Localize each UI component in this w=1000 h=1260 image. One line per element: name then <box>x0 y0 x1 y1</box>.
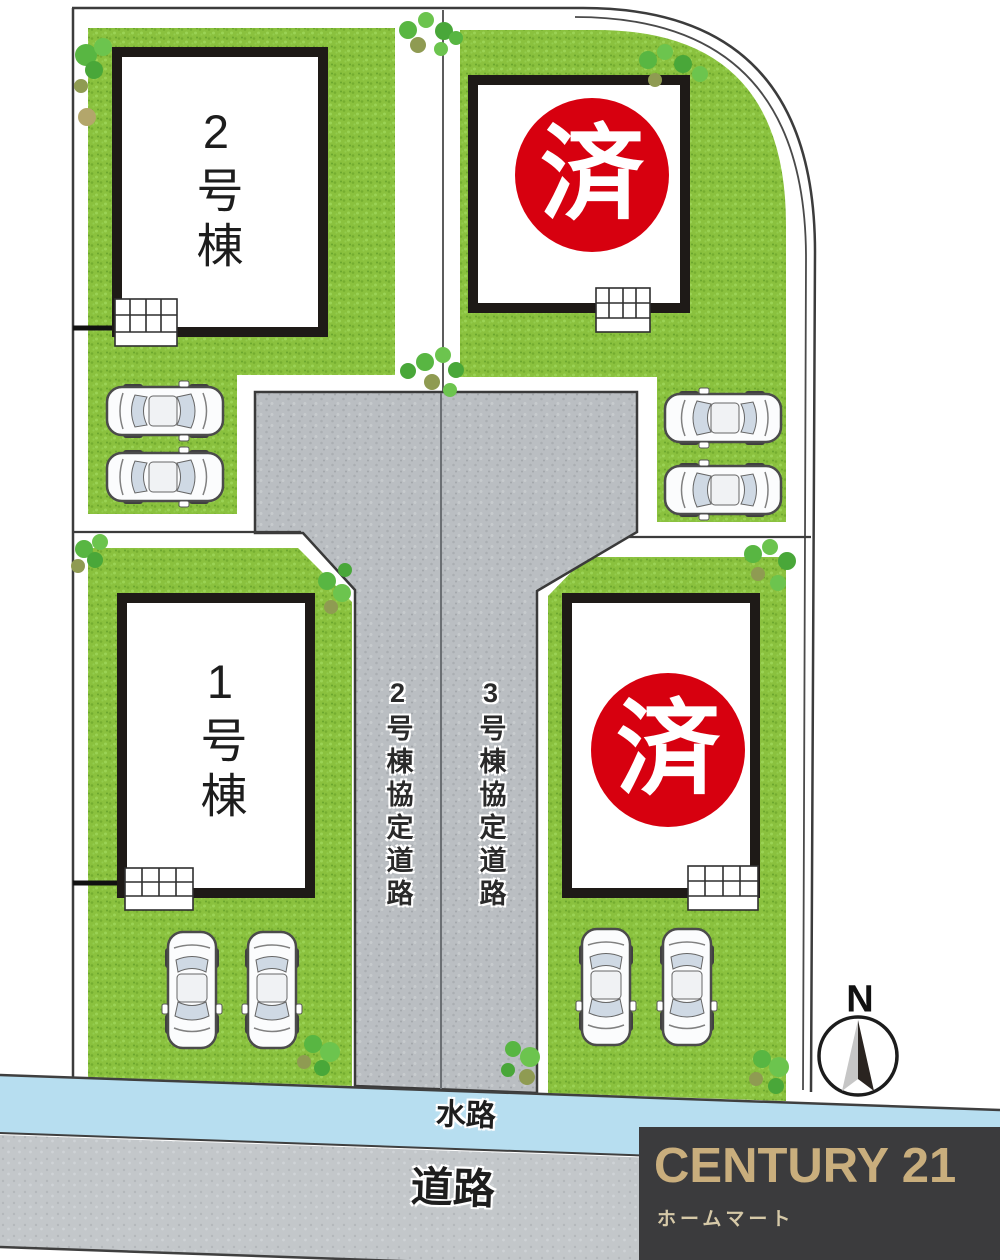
sold-badge-unit-3: 済 <box>515 98 669 252</box>
porch-building-3 <box>596 288 650 332</box>
car <box>107 381 223 441</box>
car <box>107 447 223 507</box>
car <box>576 929 636 1045</box>
waterway-label: 水路 <box>435 1089 496 1135</box>
sold-badge-unit-4: 済 <box>591 673 745 827</box>
compass-north-letter: N <box>846 979 873 1022</box>
store-name: ホームマート <box>657 1204 1000 1231</box>
site-plan: 2号棟 1号棟 2号棟協定道路 3号棟協定道路 済 済 水路 道路 N CENT… <box>0 0 1000 1260</box>
car <box>242 932 302 1048</box>
building-1-label: 1号棟 <box>197 655 244 826</box>
front-road-label: 道路 <box>410 1153 496 1217</box>
car <box>665 460 781 520</box>
building-2-label: 2号棟 <box>193 105 240 276</box>
tree-cluster <box>400 347 464 397</box>
north-compass <box>819 1017 897 1095</box>
road-lane-2-label: 2号棟協定道路 <box>384 678 411 912</box>
porch-building-2 <box>115 299 177 346</box>
brand-name: CENTURY 21 <box>654 1142 1000 1191</box>
porch-building-1 <box>125 868 193 910</box>
century21-logo: CENTURY 21 ホームマート <box>639 1127 1000 1260</box>
car <box>665 388 781 448</box>
tree-cluster <box>399 12 463 56</box>
porch-building-4 <box>688 866 758 910</box>
car <box>657 929 717 1045</box>
car <box>162 932 222 1048</box>
site-plan-graphic <box>0 0 1000 1260</box>
road-lane-3-label: 3号棟協定道路 <box>477 678 504 912</box>
